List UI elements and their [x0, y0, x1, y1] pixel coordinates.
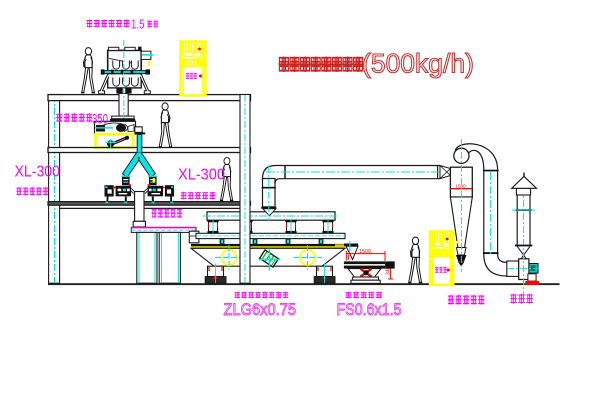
- svg-text:1.5: 1.5: [131, 18, 145, 32]
- svg-text:350: 350: [92, 111, 108, 127]
- svg-text:XL-300: XL-300: [15, 163, 61, 180]
- svg-text:1500: 1500: [359, 249, 371, 255]
- svg-text:FS0.6x1.5: FS0.6x1.5: [337, 300, 402, 319]
- svg-text:1500: 1500: [456, 184, 467, 189]
- svg-text:(500kg/h): (500kg/h): [362, 49, 474, 79]
- svg-text:XL-300: XL-300: [178, 167, 225, 184]
- svg-text:ZLG6x0.75: ZLG6x0.75: [224, 300, 297, 319]
